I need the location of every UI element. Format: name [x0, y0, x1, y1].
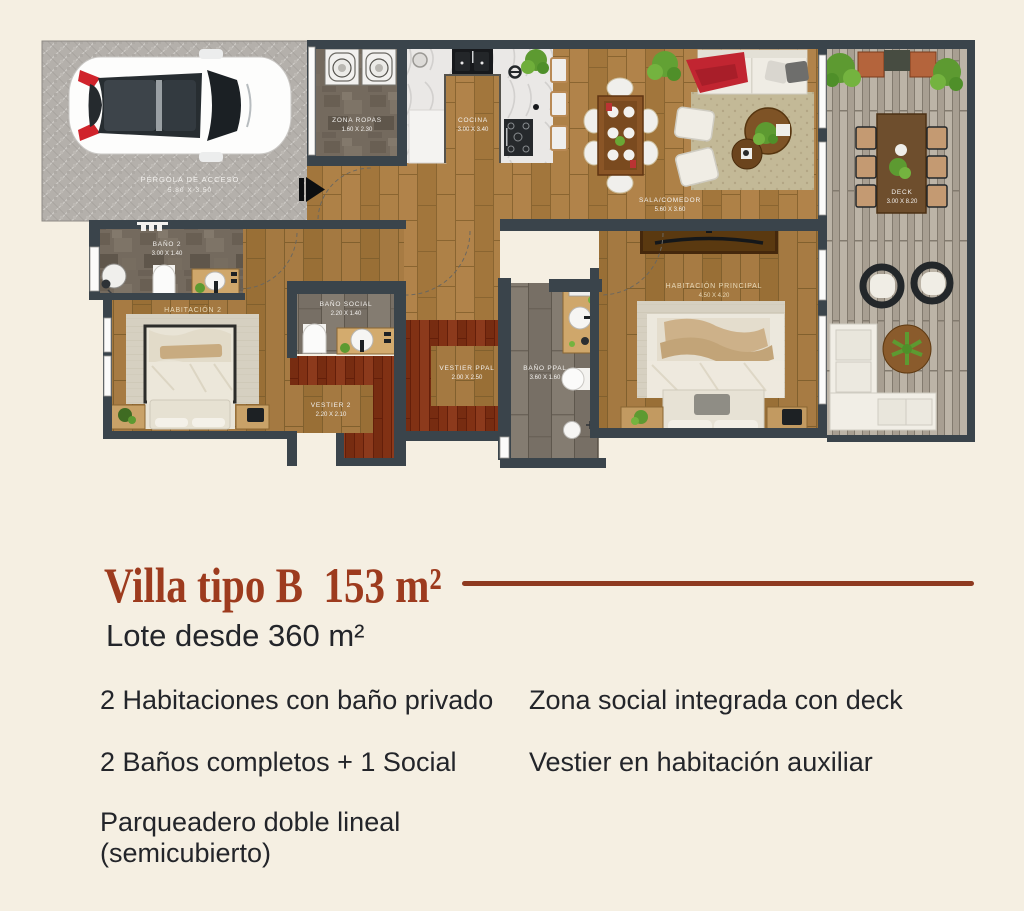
svg-text:COCINA: COCINA	[458, 117, 488, 124]
svg-text:3.00 X 1.40: 3.00 X 1.40	[152, 251, 183, 257]
svg-text:VESTIER 2: VESTIER 2	[311, 402, 351, 409]
svg-text:VESTIER PPAL: VESTIER PPAL	[439, 365, 494, 372]
svg-text:2.00 X 2.50: 2.00 X 2.50	[452, 375, 483, 381]
svg-text:3.60 X 1.60: 3.60 X 1.60	[530, 375, 561, 381]
svg-text:2.20 X 2.10: 2.20 X 2.10	[316, 412, 347, 418]
svg-text:PÉRGOLA DE ACCESO: PÉRGOLA DE ACCESO	[141, 175, 240, 184]
svg-text:BAÑO 2: BAÑO 2	[153, 239, 182, 248]
svg-text:3.00 X 3.40: 3.00 X 3.40	[458, 127, 489, 133]
svg-text:BAÑO SOCIAL: BAÑO SOCIAL	[320, 299, 373, 308]
svg-text:HABITACIÓN 2: HABITACIÓN 2	[164, 305, 222, 314]
svg-text:3.00 X 8.20: 3.00 X 8.20	[887, 199, 918, 205]
svg-text:BAÑO PPAL: BAÑO PPAL	[523, 363, 567, 372]
svg-text:SALA/COMEDOR: SALA/COMEDOR	[639, 197, 701, 204]
svg-text:DECK: DECK	[891, 189, 912, 196]
svg-text:ZONA ROPAS: ZONA ROPAS	[332, 117, 382, 124]
svg-text:1.60 X 2.30: 1.60 X 2.30	[342, 127, 373, 133]
svg-text:2.20 X 1.40: 2.20 X 1.40	[331, 311, 362, 317]
svg-text:5.60 X 3.60: 5.60 X 3.60	[655, 207, 686, 213]
svg-text:5.80 X 3.50: 5.80 X 3.50	[168, 187, 212, 194]
svg-text:HABITACIÓN PRINCIPAL: HABITACIÓN PRINCIPAL	[666, 281, 763, 290]
svg-text:4.50 X 4.20: 4.50 X 4.20	[699, 293, 730, 299]
